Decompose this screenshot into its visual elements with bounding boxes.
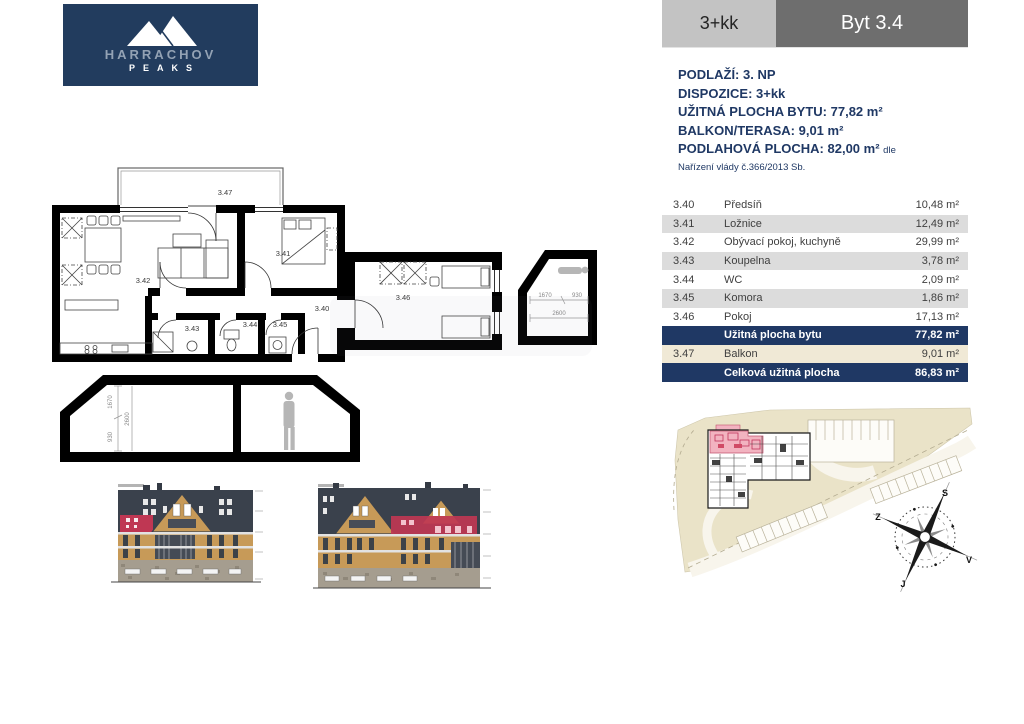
info-layout: DISPOZICE: 3+kk (678, 85, 896, 104)
room-name: Celková užitná plocha (724, 367, 896, 379)
info-floor-area-suffix: dle (883, 145, 896, 156)
info-regulation: Nařízení vlády č.366/2013 Sb. (678, 161, 896, 175)
elevation-2 (313, 482, 491, 588)
unit-info: PODLAŽÍ: 3. NP DISPOZICE: 3+kk UŽITNÁ PL… (678, 66, 896, 175)
room-number: 3.47 (662, 348, 724, 360)
room-area: 29,99 m² (896, 236, 968, 248)
compass-east-label: V (966, 555, 972, 565)
compass-north-label: S (942, 488, 948, 498)
table-row: 3.44 WC 2,09 m² (662, 270, 968, 289)
room-name: Obývací pokoj, kuchyně (724, 236, 896, 248)
site-plan: S Z V J (660, 400, 1024, 620)
label-living: 3.42 (136, 276, 151, 285)
balcony-outline (118, 168, 283, 206)
elevations (95, 482, 495, 602)
table-row-grand-total: Celková užitná plocha 86,83 m² (662, 363, 968, 382)
room-area: 1,86 m² (896, 292, 968, 304)
logo-tagline: PEAKS (121, 63, 200, 74)
table-row: 3.40 Předsíň 10,48 m² (662, 196, 968, 215)
room-name: WC (724, 274, 896, 286)
room-number: 3.43 (662, 255, 724, 267)
room-number: 3.41 (662, 218, 724, 230)
label-storage: 3.45 (273, 320, 288, 329)
floor-plan-sheet: HARRACHOV PEAKS 3+kk Byt 3.4 PODLAŽÍ: 3.… (0, 0, 1024, 724)
label-bath: 3.43 (185, 324, 200, 333)
logo-name: HARRACHOV (105, 48, 217, 61)
room-name: Komora (724, 292, 896, 304)
stone-base (318, 568, 480, 588)
room-area: 10,48 m² (896, 199, 968, 211)
watermark (330, 296, 592, 356)
room-table: 3.40 Předsíň 10,48 m² 3.41 Ložnice 12,49… (662, 196, 968, 382)
dim-slope: 1670 (108, 395, 114, 409)
room-area: 9,01 m² (896, 348, 968, 360)
room-area: 12,49 m² (896, 218, 968, 230)
person-silhouette-lying (558, 267, 588, 274)
room-name: Koupelna (724, 255, 896, 267)
elevation-caption (118, 484, 144, 487)
parking-top (808, 420, 894, 462)
room-number: 3.42 (662, 236, 724, 248)
room-number: 3.45 (662, 292, 724, 304)
room-area: 2,09 m² (896, 274, 968, 286)
label-balcony: 3.47 (218, 188, 233, 197)
table-row: 3.45 Komora 1,86 m² (662, 289, 968, 308)
room-name: Balkon (724, 348, 896, 360)
table-row: 3.46 Pokoj 17,13 m² (662, 308, 968, 327)
elevation-1 (111, 483, 263, 582)
table-row: 3.43 Koupelna 3,78 m² (662, 252, 968, 271)
room-name: Užitná plocha bytu (724, 329, 896, 341)
disposition-badge: 3+kk (662, 0, 776, 47)
room-name: Pokoj (724, 311, 896, 323)
table-row: 3.41 Ložnice 12,49 m² (662, 215, 968, 234)
header-divider (662, 47, 968, 48)
table-row: 3.42 Obývací pokoj, kuchyně 29,99 m² (662, 233, 968, 252)
unit-title: Byt 3.4 (776, 0, 968, 47)
mountain-icon (121, 13, 201, 47)
elevation-caption (318, 484, 344, 487)
elevation-dim-ticks (483, 490, 491, 578)
elevation-dim-ticks (255, 491, 263, 579)
cross-section: 1670 930 2600 (60, 375, 360, 462)
room-number: 3.46 (662, 311, 724, 323)
info-floor: PODLAŽÍ: 3. NP (678, 66, 896, 85)
room-area: 77,82 m² (896, 329, 968, 341)
dim-height: 2600 (125, 412, 131, 426)
dim-wall: 930 (108, 431, 114, 442)
info-floor-area: PODLAHOVÁ PLOCHA: 82,00 m² dle (678, 140, 896, 161)
unit-highlight (391, 516, 477, 536)
label-wc: 3.44 (243, 320, 258, 329)
info-usable-area: UŽITNÁ PLOCHA BYTU: 77,82 m² (678, 103, 896, 122)
room-area: 3,78 m² (896, 255, 968, 267)
room-name: Předsíň (724, 199, 896, 211)
info-balcony: BALKON/TERASA: 9,01 m² (678, 122, 896, 141)
label-bedroom: 3.41 (276, 249, 291, 258)
logo: HARRACHOV PEAKS (63, 4, 258, 86)
table-row-total-usable: Užitná plocha bytu 77,82 m² (662, 326, 968, 345)
room-name: Ložnice (724, 218, 896, 230)
compass-west-label: Z (875, 512, 881, 522)
table-row-balcony: 3.47 Balkon 9,01 m² (662, 345, 968, 364)
label-hall: 3.40 (315, 304, 330, 313)
room-number: 3.44 (662, 274, 724, 286)
room-area: 86,83 m² (896, 367, 968, 379)
unit-highlight (120, 515, 153, 532)
room-area: 17,13 m² (896, 311, 968, 323)
room-number: 3.40 (662, 199, 724, 211)
compass-south-label: J (900, 579, 905, 589)
